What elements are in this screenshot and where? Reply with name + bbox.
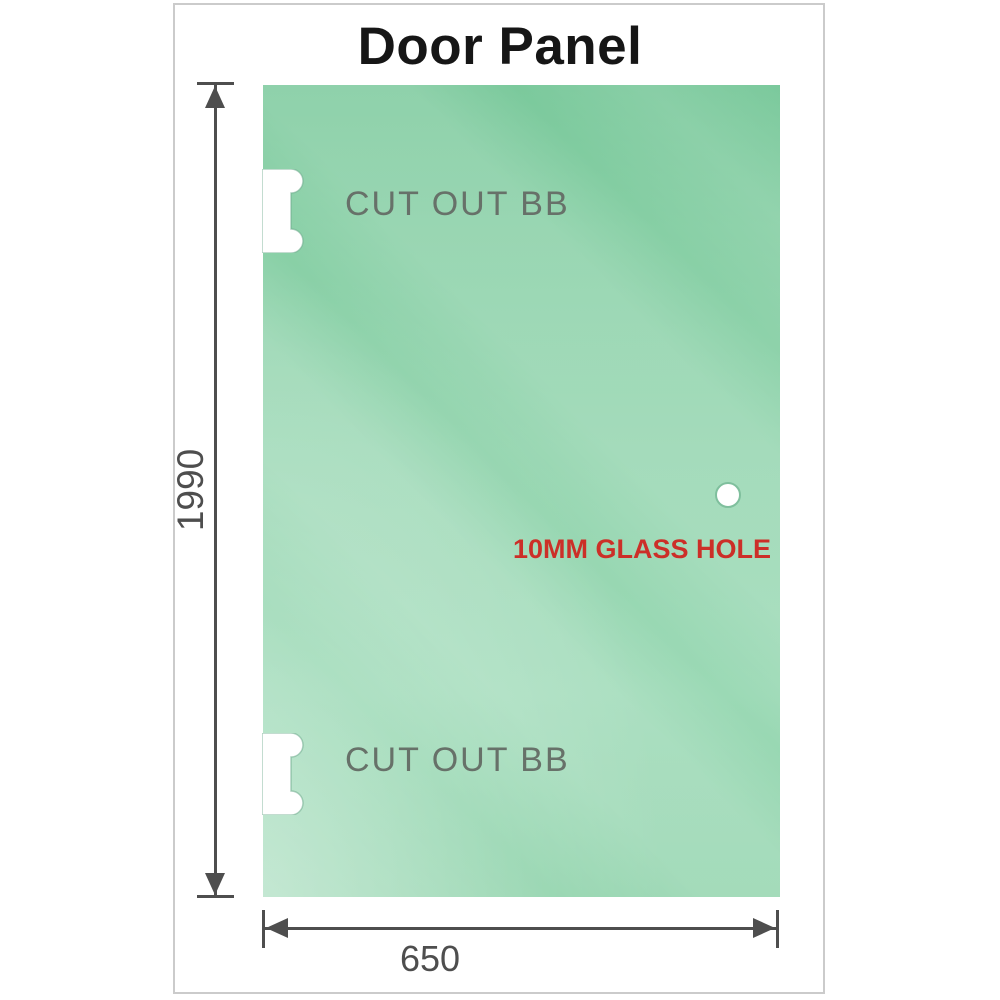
glass-panel: CUT OUT BB CUT OUT BB 10MM GLASS HOLE — [263, 85, 780, 897]
arrow-left-icon — [266, 918, 288, 938]
glass-hole-icon — [715, 482, 741, 508]
arrow-down-icon — [205, 873, 225, 895]
page-title: Door Panel — [175, 16, 825, 77]
height-dim-end-tick-bottom — [197, 895, 234, 898]
width-dim-end-tick-right — [776, 910, 779, 948]
arrow-right-icon — [753, 918, 775, 938]
width-dim-label: 650 — [390, 938, 470, 980]
width-dim-line — [264, 927, 777, 930]
arrow-up-icon — [205, 86, 225, 108]
door-panel-diagram: Door Panel CUT OUT BB CUT OUT BB 10MM GL… — [0, 0, 1000, 1000]
hinge-cutout-top-icon — [262, 169, 304, 253]
hinge-cutout-bottom-icon — [262, 733, 304, 815]
glass-hole-label: 10MM GLASS HOLE — [513, 534, 771, 565]
height-dim-label: 1990 — [170, 430, 210, 550]
cutout-top-label: CUT OUT BB — [345, 185, 570, 224]
cutout-bottom-label: CUT OUT BB — [345, 741, 570, 780]
height-dim-line — [214, 85, 217, 897]
